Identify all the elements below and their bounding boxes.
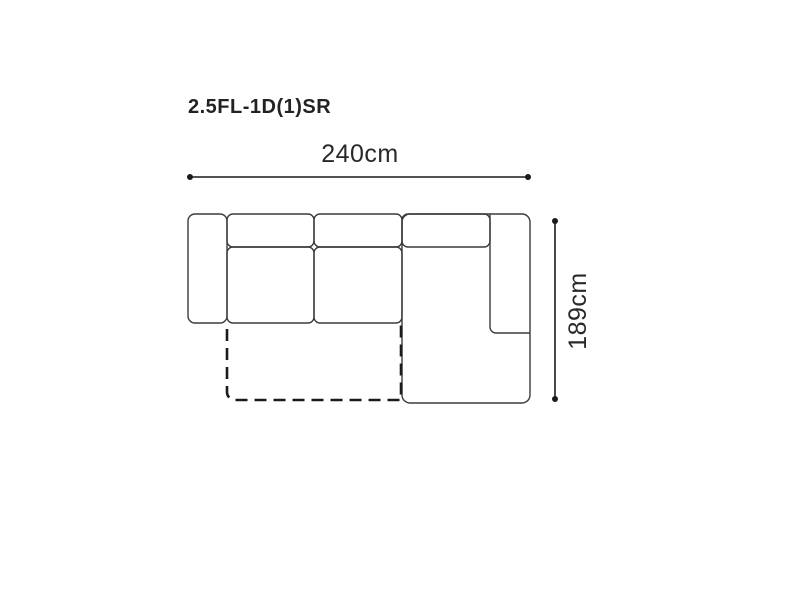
sofa-seat-cushion-1 [227,247,314,323]
dimension-endpoint-dot-icon [187,174,193,180]
model-code-label: 2.5FL-1D(1)SR [188,96,331,118]
dimension-endpoint-dot-icon [525,174,531,180]
sofa-left-armrest [188,214,227,323]
sofa-outline [188,214,530,403]
dimension-endpoint-dot-icon [552,396,558,402]
sofa-dimension-diagram: 2.5FL-1D(1)SR 240cm 189cm [0,0,800,600]
sofa-right-armrest-boundary [490,214,530,333]
sofa-seat-cushion-2 [314,247,402,323]
sofa-chaise-section [402,214,530,403]
sofa-backrest-cushion-2 [314,214,402,247]
sofa-pullout-bed-dashed-outline [227,324,401,400]
dimension-endpoint-dot-icon [552,218,558,224]
width-dimension-label: 240cm [321,140,399,168]
sofa-backrest-cushion-3 [402,214,490,247]
width-dimension-line [187,174,531,180]
sofa-dimension-diagram-page: 2.5FL-1D(1)SR 240cm 189cm [0,0,800,600]
sofa-backrest-cushion-1 [227,214,314,247]
depth-dimension-line [552,218,558,402]
depth-dimension-label: 189cm [564,272,592,350]
